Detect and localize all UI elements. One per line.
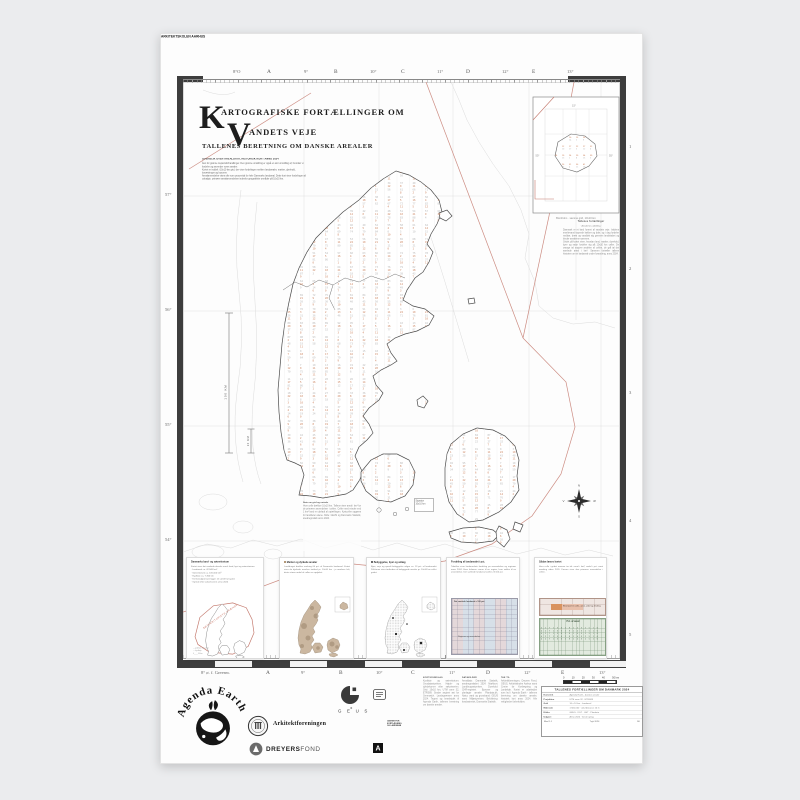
svg-text:601311: 601311 — [525, 168, 528, 177]
svg-text:65514: 65514 — [438, 490, 441, 503]
graticule-label: 13° — [567, 69, 573, 74]
graticule-label: 1 — [629, 144, 631, 149]
builtup-icon — [371, 561, 373, 563]
svg-text:243383: 243383 — [288, 210, 291, 223]
svg-text:15925: 15925 — [338, 168, 341, 177]
svg-text:8213188: 8213188 — [438, 448, 441, 461]
center-landskab-line: OG LANDSKAB — [387, 725, 417, 727]
svg-text:59545: 59545 — [288, 280, 291, 293]
svg-text:238143: 238143 — [425, 336, 428, 349]
svg-text:622101: 622101 — [300, 168, 303, 181]
cell-example-caption: Eksempel: én celle - areal, andel og ænd… — [563, 605, 603, 607]
svg-text:4853010: 4853010 — [525, 532, 528, 545]
graticule-label: 11° — [437, 69, 443, 74]
svg-text:80116: 80116 — [488, 420, 491, 429]
credits-body: Kystlinje og søterritorium: Geodatastyre… — [423, 679, 459, 706]
agriculture-icon — [284, 561, 286, 563]
panel-agriculture: Marker og dyrkede arealer Landbruget dæk… — [279, 557, 354, 659]
svg-text:288211: 288211 — [388, 364, 391, 377]
svg-text:756345: 756345 — [500, 210, 503, 223]
svg-text:80641: 80641 — [463, 238, 466, 247]
svg-text:8711526: 8711526 — [463, 252, 466, 265]
svg-text:520822: 520822 — [288, 266, 291, 279]
svg-text:74162: 74162 — [288, 504, 291, 513]
svg-text:1820303: 1820303 — [350, 168, 353, 181]
scalebar-ticks: 01020304050 km — [563, 676, 619, 679]
svg-text:9621671: 9621671 — [500, 252, 503, 265]
svg-text:815446: 815446 — [525, 210, 528, 223]
svg-text:4905410: 4905410 — [388, 406, 391, 419]
svg-text:70421: 70421 — [275, 308, 278, 317]
credits-column: DATAKILDERArealdata: Danmarks Statistik,… — [462, 676, 498, 738]
right-col-paragraphs: Danmark er et land formet af vandets vej… — [563, 228, 619, 255]
svg-text:790401: 790401 — [488, 224, 491, 237]
svg-text:371138: 371138 — [513, 322, 516, 331]
svg-text:4711526: 4711526 — [438, 378, 441, 391]
svg-text:252416: 252416 — [350, 182, 353, 195]
panel-territory: Danmarks land- og søterritorium Kortet v… — [186, 557, 264, 659]
svg-text:6416775: 6416775 — [363, 448, 366, 461]
svg-text:112425: 112425 — [388, 504, 391, 517]
info-label: Udgave — [544, 715, 570, 718]
svg-text:2713861: 2713861 — [525, 490, 528, 503]
svg-text:69986: 69986 — [413, 434, 416, 443]
svg-text:66191910: 66191910 — [463, 210, 466, 223]
svg-text:249796: 249796 — [425, 532, 428, 545]
svg-text:33135311: 33135311 — [325, 210, 328, 223]
svg-text:134214: 134214 — [300, 182, 303, 195]
svg-text:122885: 122885 — [525, 266, 528, 279]
svg-text:11653: 11653 — [275, 364, 278, 377]
grid-cell-lines — [272, 162, 522, 557]
svg-text:826209: 826209 — [525, 406, 528, 419]
svg-text:75113: 75113 — [275, 182, 278, 195]
svg-text:591487: 591487 — [463, 196, 466, 209]
svg-text:191487: 191487 — [438, 322, 441, 335]
svg-text:89182911: 89182911 — [438, 462, 441, 475]
percentage-grid-digits: 4 2 7 1 3 6 2 8 1 4 3 2 5 1 64 2 7 1 3 6… — [541, 627, 606, 641]
svg-text:38137: 38137 — [400, 378, 403, 387]
svg-text:161951: 161951 — [513, 280, 516, 293]
svg-text:2419404: 2419404 — [375, 168, 378, 181]
map-poster: 8°OA9°B10°C11°D12°E13° 8° ø. f. Greenw.A… — [160, 33, 643, 764]
svg-text:35255: 35255 — [275, 238, 278, 247]
svg-text:2921202: 2921202 — [275, 420, 278, 433]
svg-text:1810695: 1810695 — [400, 532, 403, 545]
svg-text:14141: 14141 — [475, 294, 478, 303]
geus-logo-icon: G E U S — [337, 684, 371, 716]
svg-text:2115339: 2115339 — [275, 210, 278, 223]
svg-text:61191212: 61191212 — [500, 182, 503, 195]
svg-text:465514: 465514 — [463, 364, 466, 377]
info-label: Kilder — [544, 711, 570, 714]
svg-text:1211594: 1211594 — [375, 532, 378, 545]
svg-text:1410226: 1410226 — [275, 196, 278, 209]
svg-text:70807: 70807 — [475, 406, 478, 419]
svg-text:7918152: 7918152 — [513, 406, 516, 419]
svg-text:340333: 340333 — [500, 322, 503, 335]
svg-text:6310763: 6310763 — [388, 434, 391, 447]
svg-text:58875: 58875 — [488, 182, 491, 195]
svg-text:202099: 202099 — [413, 336, 416, 349]
svg-text:3813609: 3813609 — [288, 238, 291, 251]
svg-text:22143612: 22143612 — [338, 182, 341, 195]
svg-text:9616422: 9616422 — [525, 434, 528, 447]
svg-text:218437: 218437 — [363, 518, 366, 531]
dreyers-light: FOND — [300, 746, 320, 753]
svg-text:6513188: 6513188 — [488, 196, 491, 209]
svg-text:4817538: 4817538 — [413, 392, 416, 405]
svg-text:8211458: 8211458 — [500, 224, 503, 237]
svg-text:681987: 681987 — [525, 378, 528, 387]
graticule-label: 9° — [301, 670, 305, 675]
svg-text:624751: 624751 — [413, 420, 416, 433]
map-scalebar: 01020304050 km — [563, 674, 619, 684]
arkitektforeningen-wordmark: Arkitektforeningen — [273, 721, 326, 727]
svg-text:599728: 599728 — [488, 378, 491, 391]
info-footer-cell: DK — [637, 720, 640, 723]
panel-territory-title: Danmarks land- og søterritorium — [191, 561, 260, 564]
svg-text:38173912: 38173912 — [488, 336, 491, 349]
svg-text:41544: 41544 — [500, 336, 503, 345]
text-line: Gridet på kortet viser, hvordan land, ma… — [563, 240, 619, 255]
graticule-label: B — [334, 69, 338, 75]
graticule-label: 10° — [370, 69, 376, 74]
center-landskab-wordmark: CENTER FORKORTLÆGNINGOG LANDSKAB — [387, 720, 417, 727]
svg-text:75196: 75196 — [525, 392, 528, 405]
svg-text:6322101: 6322101 — [275, 294, 278, 307]
grid-digit-row: 4 2 7 1 3 6 2 8 1 4 3 2 5 1 6 — [541, 638, 606, 641]
scale-100km-label: 100 KM — [224, 384, 228, 399]
svg-text:905410: 905410 — [363, 532, 366, 545]
bornholm-deg-top: 15° — [572, 104, 576, 108]
svg-text:261919: 261919 — [438, 336, 441, 345]
svg-text:67118011: 67118011 — [288, 490, 291, 503]
credits-body: Arkitektforeningen, Dreyers Fond, GEUS, … — [501, 679, 537, 703]
info-value: Agenda Earth - danske arealer — [570, 693, 641, 696]
dreyers-fond-wordmark: DREYERSFOND — [266, 746, 321, 753]
svg-text:17263: 17263 — [488, 294, 491, 307]
graticule-label: 54° — [165, 537, 171, 542]
info-value: 10 x 10 km · landareal — [570, 702, 641, 705]
info-footer-cell: Blad 1:1 — [544, 720, 552, 723]
svg-text:247176: 247176 — [488, 308, 491, 321]
svg-text:606698: 606698 — [288, 476, 291, 489]
svg-text:5121603: 5121603 — [513, 350, 516, 363]
svg-text:4810559: 4810559 — [500, 350, 503, 363]
graticule-label: 8° ø. f. Greenw. — [201, 670, 230, 675]
svg-text:860265: 860265 — [513, 420, 516, 433]
svg-text:31157: 31157 — [288, 168, 291, 181]
scale-lines — [225, 313, 255, 453]
svg-text:56178811: 56178811 — [275, 280, 278, 293]
svg-text:16152611: 16152611 — [313, 182, 316, 195]
svg-text:2722012: 2722012 — [413, 350, 416, 363]
compass-rose-icon: NØSV — [562, 484, 596, 519]
svg-text:66218110: 66218110 — [400, 434, 403, 447]
method-note-heading: Note om grid og metode — [303, 501, 361, 504]
svg-text:747312: 747312 — [438, 238, 441, 251]
svg-text:6718220: 6718220 — [525, 182, 528, 195]
right-text-column: Tallenes fortællinger · Arealernes udvik… — [563, 220, 619, 324]
svg-text:209327: 209327 — [300, 196, 303, 209]
svg-text:3157310: 3157310 — [488, 266, 491, 279]
svg-text:232037: 232037 — [313, 196, 316, 205]
svg-text:1717: 1717 — [569, 146, 571, 151]
svg-text:5718641: 5718641 — [275, 476, 278, 489]
svg-text:8121134: 8121134 — [288, 518, 291, 531]
svg-text:133648: 133648 — [525, 462, 528, 475]
svg-text:60157310: 60157310 — [463, 392, 466, 405]
svg-text:4912778: 4912778 — [275, 266, 278, 279]
svg-text:83122111: 83122111 — [500, 420, 503, 433]
svg-text:5317606: 5317606 — [375, 420, 378, 433]
info-label: Målestok — [544, 707, 570, 710]
svg-text:V: V — [562, 499, 564, 503]
svg-text:72134: 72134 — [513, 392, 516, 401]
svg-text:4217412: 4217412 — [463, 280, 466, 293]
svg-text:935378: 935378 — [513, 434, 516, 447]
right-col-heading: Tallenes fortællinger — [563, 220, 619, 223]
svg-text:96040: 96040 — [438, 476, 441, 485]
svg-text:95226411: 95226411 — [438, 280, 441, 293]
method-note: Note om grid og metode Hver celle dækker… — [303, 501, 361, 551]
svg-text:9220303: 9220303 — [275, 546, 278, 559]
svg-text:2972: 2972 — [513, 252, 516, 261]
svg-text:731951: 731951 — [488, 406, 491, 419]
graticule-label: E — [532, 69, 535, 75]
svg-text:721829: 721829 — [488, 210, 491, 219]
info-label: Projektion — [544, 698, 570, 701]
svg-text:4404712: 4404712 — [425, 378, 428, 391]
svg-text:406413: 406413 — [438, 364, 441, 377]
photo-background: 8°OA9°B10°C11°D12°E13° 8° ø. f. Greenw.A… — [0, 0, 800, 800]
graticule-label: B — [339, 670, 343, 676]
svg-text:55226411: 55226411 — [413, 406, 416, 419]
bornholm-inset: 0073146219281257121019132616330101417172… — [533, 97, 619, 220]
svg-text:G E U S: G E U S — [338, 709, 370, 714]
svg-text:792131: 792131 — [425, 448, 428, 461]
svg-text:2087511: 2087511 — [525, 476, 528, 489]
graticule-label: 5 — [629, 632, 631, 637]
panel-how-to-read: Sådan læses kortet Hver celle i gridet r… — [534, 557, 607, 659]
panel-builtup-title: Bebyggelse, byer og anlæg — [371, 561, 437, 564]
graticule-label: C — [401, 69, 405, 75]
svg-text:4815808: 4815808 — [475, 168, 478, 181]
graticule-label: D — [466, 69, 470, 75]
svg-text:9213324: 9213324 — [363, 504, 366, 517]
svg-text:2813460: 2813460 — [363, 182, 366, 195]
credits-column: KORTGRUNDLAGKystlinje og søterritorium: … — [423, 676, 459, 738]
svg-text:452250: 452250 — [488, 350, 491, 359]
panel-agriculture-title: Marker og dyrkede arealer — [284, 561, 350, 564]
svg-text:231164: 231164 — [513, 294, 516, 307]
panel-agriculture-map — [282, 594, 352, 658]
bornholm-deg-left: 55° — [536, 154, 540, 158]
svg-text:331300: 331300 — [438, 350, 441, 363]
svg-text:17942: 17942 — [400, 336, 403, 349]
svg-text:268428: 268428 — [325, 196, 328, 209]
svg-text:3718369: 3718369 — [425, 364, 428, 377]
svg-text:421843: 421843 — [388, 392, 391, 401]
svg-text:5510410: 5510410 — [525, 546, 528, 559]
frame-bottom-band — [177, 660, 626, 668]
svg-text:34731: 34731 — [413, 364, 416, 373]
scale-10km-label: 10 KM — [246, 436, 250, 447]
graticule-label: 10° — [376, 670, 382, 675]
method-note-text: Hver celle dækker 10x10 km. Tallene vise… — [303, 505, 361, 520]
svg-text:6220772: 6220772 — [500, 378, 503, 391]
svg-text:427665: 427665 — [275, 252, 278, 265]
svg-text:8515190: 8515190 — [275, 532, 278, 545]
svg-text:404712: 404712 — [400, 504, 403, 517]
svg-text:4416490: 4416490 — [513, 336, 516, 349]
svg-text:6720840: 6720840 — [463, 406, 466, 419]
svg-text:5810695: 5810695 — [425, 406, 428, 419]
svg-text:Ø: Ø — [593, 499, 596, 503]
svg-text:411653: 411653 — [300, 238, 303, 251]
svg-text:21191212: 21191212 — [475, 308, 478, 321]
svg-text:43842: 43842 — [275, 448, 278, 457]
svg-text:7220211: 7220211 — [425, 434, 428, 447]
svg-text:79796: 79796 — [475, 280, 478, 293]
graticule-label: 3 — [629, 390, 631, 395]
svg-text:5211594: 5211594 — [400, 406, 403, 419]
graticule-label: A — [267, 69, 271, 75]
scalebar-tick-label: 50 km — [612, 676, 619, 679]
svg-text:867244: 867244 — [425, 462, 428, 475]
info-label: Grid — [544, 702, 570, 705]
svg-text:491131: 491131 — [500, 546, 503, 555]
svg-text:129864: 129864 — [438, 308, 441, 321]
svg-text:5416639: 5416639 — [438, 392, 441, 405]
svg-text:341884: 341884 — [525, 504, 528, 517]
svg-text:565650: 565650 — [388, 420, 391, 433]
svg-text:731300: 731300 — [463, 224, 466, 237]
svg-text:76710: 76710 — [500, 406, 503, 415]
svg-text:2720840: 2720840 — [438, 532, 441, 545]
svg-text:5496510: 5496510 — [525, 350, 528, 363]
svg-text:57263: 57263 — [513, 168, 516, 181]
svg-text:102084: 102084 — [488, 280, 491, 289]
svg-text:761487: 761487 — [413, 448, 416, 461]
svg-text:301325: 301325 — [425, 350, 428, 359]
svg-text:6114760: 6114760 — [525, 364, 528, 377]
svg-text:000: 000 — [275, 168, 277, 177]
svg-text:531062: 531062 — [463, 378, 466, 387]
panel-builtup-body: Byer, veje og spredt bebyggelse udgør ca… — [371, 565, 437, 574]
svg-text:N: N — [578, 484, 580, 488]
svg-text:S: S — [578, 515, 580, 519]
svg-text:11558: 11558 — [400, 518, 403, 527]
svg-text:45187112: 45187112 — [288, 252, 291, 265]
svg-text:529864: 529864 — [463, 182, 466, 195]
svg-text:84144310: 84144310 — [275, 336, 278, 349]
svg-text:1221202: 1221202 — [325, 168, 328, 181]
svg-text:216707: 216707 — [425, 294, 428, 307]
how-to-read-body: Hver celle i gridet rummer tre tal: area… — [539, 565, 603, 574]
svg-text:622131: 622131 — [475, 196, 478, 209]
svg-text:55156612: 55156612 — [500, 364, 503, 377]
svg-text:456481: 456481 — [400, 392, 403, 405]
svg-text:395650: 395650 — [438, 168, 441, 181]
svg-text:113852: 113852 — [463, 294, 466, 307]
bornholm-deg-right: 55° — [609, 154, 613, 158]
svg-text:78108: 78108 — [275, 518, 278, 527]
panel-distribution-body: Tabellen viser landarealets fordeling på… — [451, 565, 516, 574]
svg-text:1416639: 1416639 — [413, 518, 416, 531]
svg-text:2513188: 2513188 — [463, 322, 466, 335]
svg-text:513852: 513852 — [488, 168, 491, 181]
panel-territory-lines: Kortet viser det samlede danske areal: l… — [191, 565, 260, 584]
svg-text:9022570: 9022570 — [475, 252, 478, 265]
svg-text:924615: 924615 — [513, 238, 516, 251]
arkitektskolen-aarhus-wordmark: ARKITEKTSKOLEN AARHUS — [161, 35, 459, 39]
svg-text:271443: 271443 — [300, 210, 303, 219]
svg-text:9312357: 9312357 — [425, 476, 428, 489]
svg-text:4112425: 4112425 — [413, 378, 416, 391]
percentage-grid: Pct. af areal 4 2 7 1 3 6 2 8 1 4 3 2 5 … — [539, 618, 606, 656]
svg-text:64717: 64717 — [513, 182, 516, 191]
distribution-table-sublabel: Regioner og anvendelser — [458, 635, 480, 638]
panel-builtup-map — [369, 594, 439, 658]
distribution-table-label: Det samlede landareal = 100 pct. — [454, 600, 485, 603]
map-info-table: TALLENES FORTÆLLINGER OM DANMARK 2024 Ko… — [541, 686, 643, 737]
svg-text:31849: 31849 — [288, 224, 291, 233]
svg-text:— grænse, 12 sømil: — grænse, 12 sømil — [193, 646, 209, 649]
svg-text:356345: 356345 — [475, 336, 478, 349]
panel-distribution-table: Fordeling af landarealet i pct. Tabellen… — [446, 557, 520, 659]
svg-text:658829: 658829 — [513, 378, 516, 391]
credits-column: TAK TILArkitektforeningen, Dreyers Fond,… — [501, 676, 537, 738]
graticule-label: 57° — [165, 192, 171, 197]
info-value: Anno 2024 · første oplag — [570, 715, 641, 718]
scalebar-tick-label: 40 — [602, 676, 605, 679]
svg-text:20131110: 20131110 — [500, 294, 503, 307]
svg-text:89113112: 89113112 — [525, 420, 528, 433]
svg-text:74263: 74263 — [463, 420, 466, 433]
highlight-cell-orange — [551, 604, 562, 609]
svg-text:152264: 152264 — [388, 532, 391, 541]
svg-text:96565: 96565 — [413, 294, 416, 303]
svg-text:910158: 910158 — [313, 168, 316, 181]
text-line: · Opmålt efter søkortserien anno 2024 — [191, 581, 260, 584]
agenda-earth-logo: Agenda Earth — [175, 678, 251, 754]
svg-text:A: A — [375, 746, 380, 753]
svg-text:3119268: 3119268 — [400, 364, 403, 377]
scalebar-tick-label: 30 — [592, 676, 595, 679]
scalebar-bar — [563, 680, 617, 685]
svg-text:302484: 302484 — [313, 210, 316, 223]
arkitektskolen-aarhus-icon: A — [373, 743, 383, 753]
svg-text:4022434: 4022434 — [525, 322, 528, 335]
graticule-label: 55° — [165, 422, 171, 427]
svg-text:26122111: 26122111 — [525, 294, 528, 307]
svg-text:6722012: 6722012 — [438, 224, 441, 237]
graticule-label: 9° — [304, 69, 308, 74]
svg-text:50135311: 50135311 — [275, 462, 278, 475]
svg-text:1310627: 1310627 — [438, 504, 441, 517]
svg-text:45475: 45475 — [463, 168, 466, 177]
svg-text:5520211: 5520211 — [475, 182, 478, 195]
svg-text:779327: 779327 — [275, 322, 278, 335]
svg-text:04683: 04683 — [475, 266, 478, 279]
text-line: Danmark er et land formet af vandets vej… — [563, 228, 619, 240]
info-value: GEUS · DST · GST · Plandata — [570, 711, 641, 714]
graticule-label: 4 — [629, 518, 631, 523]
svg-text:921159: 921159 — [425, 280, 428, 289]
dreyers-fond-icon — [249, 742, 263, 756]
